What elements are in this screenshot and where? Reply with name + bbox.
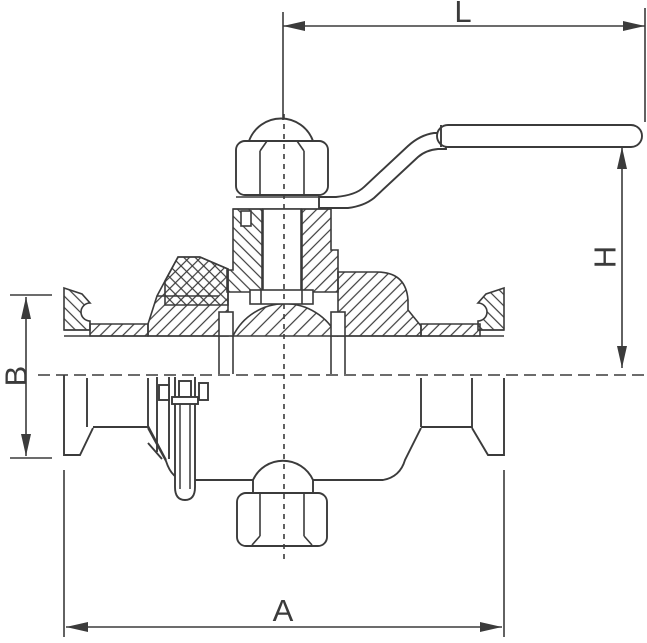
left-ferrule-section [64, 288, 90, 330]
left-ferrule-outline [64, 375, 93, 455]
top-nut-hex [236, 141, 328, 195]
ball-section [233, 304, 337, 336]
gland-follower [241, 211, 251, 226]
dim-B-arrow-top [21, 297, 31, 319]
right-ferrule-section [478, 288, 504, 330]
drawing-canvas: L H B A [0, 0, 647, 643]
dim-H-arrow-top [617, 147, 627, 169]
dim-A-label: A [273, 593, 294, 628]
body-clamp-bolt [148, 377, 208, 500]
centerlines [38, 114, 647, 560]
bottom-nut-hex [237, 493, 327, 546]
clamp-lug-left [159, 385, 169, 400]
clamp-bolt-washer [172, 397, 198, 404]
valve-stem [263, 209, 301, 292]
dim-H-label: H [588, 246, 623, 268]
left-tube-wall [90, 324, 148, 336]
dim-L-arrow-right [623, 21, 645, 31]
seat-edges [219, 336, 345, 374]
dim-B-label: B [0, 366, 34, 387]
bowl-right [313, 428, 421, 480]
dim-H-arrow-bottom [617, 346, 627, 368]
left-seat-ring [219, 312, 233, 336]
seat-edge-lines [219, 336, 345, 374]
bottom-boss-dome [253, 461, 313, 480]
bottom-boss-sides [253, 480, 313, 493]
handle [319, 125, 642, 208]
clamp-lug-right [199, 383, 208, 400]
body-clamp-section [165, 257, 228, 305]
top-cap-nut [236, 118, 328, 195]
right-tube-wall [421, 324, 480, 336]
clamp-bolt-head [179, 381, 191, 397]
right-packing-gland [302, 209, 338, 292]
handle-grip [437, 125, 642, 147]
dim-A-arrow-right [480, 622, 502, 632]
dim-L-arrow-left [283, 21, 305, 31]
right-seat-ring [331, 312, 345, 336]
right-body-section [338, 272, 421, 336]
top-nut-dome [249, 118, 313, 141]
stem-collar [250, 290, 313, 304]
dim-A-arrow-left [66, 622, 88, 632]
dim-L-label: L [454, 0, 471, 29]
handle-lever [319, 133, 446, 208]
dim-B-arrow-bottom [21, 434, 31, 456]
bottom-cap-nut [237, 493, 327, 546]
valve-drawing-svg: L H B A [0, 0, 647, 643]
right-ferrule-outline [472, 378, 504, 455]
